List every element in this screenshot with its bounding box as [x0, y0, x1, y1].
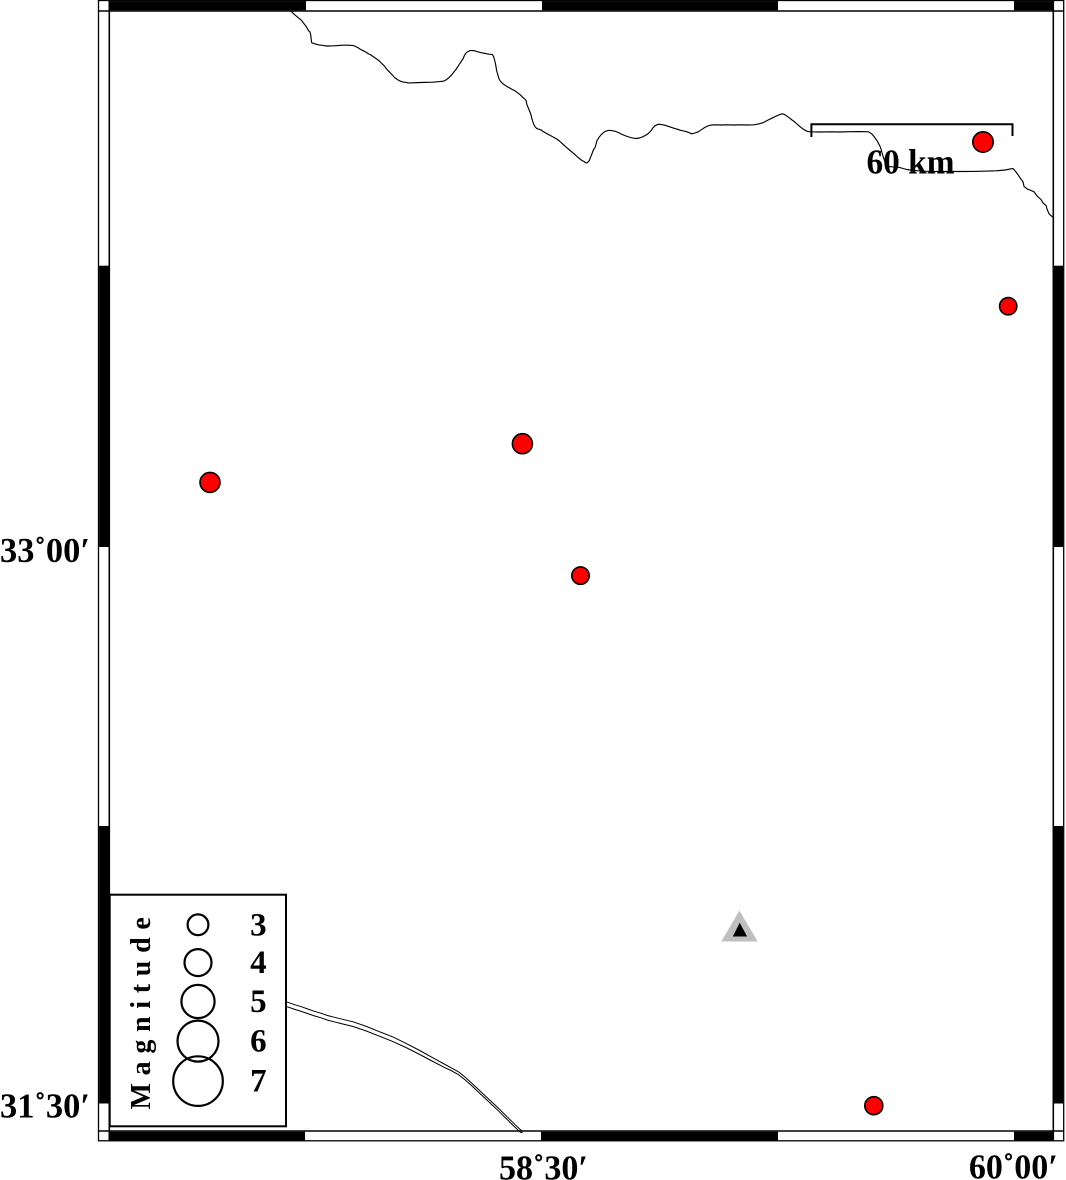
svg-text:7: 7 — [250, 1064, 267, 1100]
svg-text:5: 5 — [250, 984, 267, 1020]
svg-text:Magnitude: Magnitude — [126, 910, 157, 1110]
svg-text:3: 3 — [250, 908, 267, 944]
svg-text:60˚00′: 60˚00′ — [969, 1148, 1058, 1180]
svg-text:6: 6 — [250, 1024, 267, 1060]
svg-text:60 km: 60 km — [867, 142, 955, 181]
svg-text:31˚30′: 31˚30′ — [0, 1086, 90, 1125]
svg-text:33˚00′: 33˚00′ — [0, 531, 90, 570]
svg-text:58˚30′: 58˚30′ — [499, 1148, 588, 1180]
svg-text:4: 4 — [250, 945, 267, 981]
